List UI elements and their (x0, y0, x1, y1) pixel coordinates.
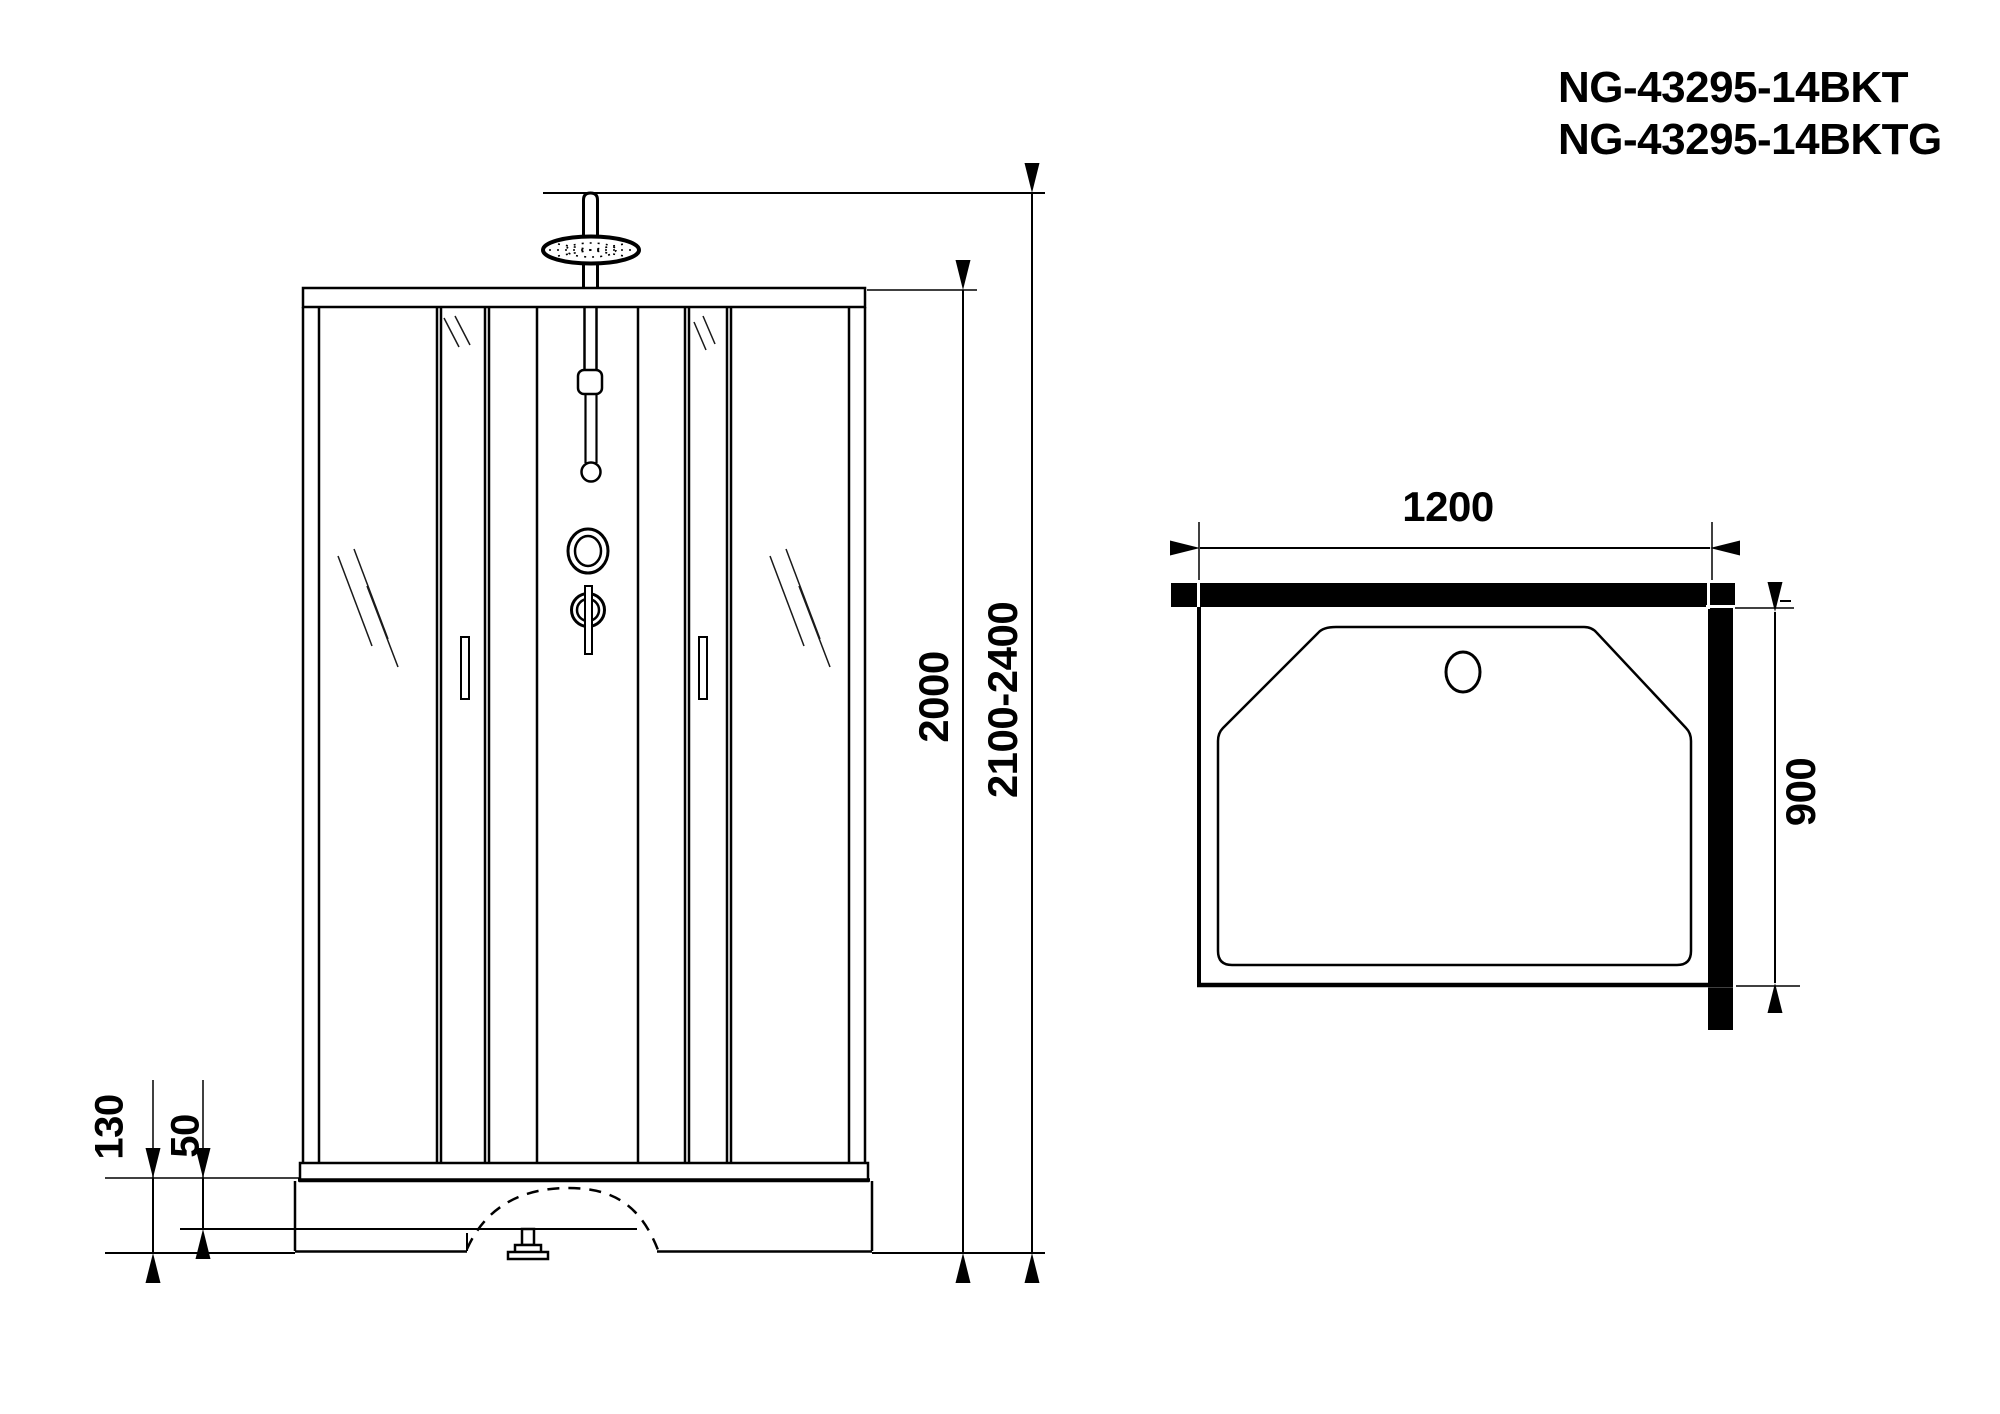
door-handle-right (699, 637, 707, 699)
plan-tray-outline (1218, 627, 1691, 965)
slider-bracket (578, 370, 602, 394)
top-view (1171, 522, 1800, 1030)
drain-fitting (508, 1229, 548, 1259)
door-handle-left (461, 637, 469, 699)
dim-label-tray-height: 130 (88, 1094, 133, 1159)
dim-label-tray-step: 50 (164, 1114, 209, 1158)
shower-column (568, 307, 608, 654)
dim-label-cabin-height: 2000 (910, 651, 958, 742)
hand-shower-holder (582, 463, 601, 482)
front-view (105, 193, 1045, 1259)
dim-label-depth: 900 (1777, 758, 1825, 827)
glass-panel-lines (303, 307, 865, 1163)
side-wall-bar (1708, 583, 1733, 1030)
tray-access-arc (467, 1188, 658, 1250)
mixer-lever (585, 586, 592, 654)
model-codes: NG-43295-14BKT NG-43295-14BKTG (1558, 62, 1942, 166)
model-code-2: NG-43295-14BKTG (1558, 114, 1942, 166)
dim-label-width: 1200 (1402, 483, 1493, 531)
drawing-sheet: NG-43295-14BKT NG-43295-14BKTG 1200 900 … (0, 0, 2000, 1414)
cabin-top-frame (303, 288, 865, 307)
model-code-1: NG-43295-14BKT (1558, 62, 1942, 114)
back-wall-bar (1171, 583, 1735, 607)
dim-label-overall-height: 2100-2400 (979, 602, 1027, 798)
shower-tray (295, 1181, 872, 1252)
